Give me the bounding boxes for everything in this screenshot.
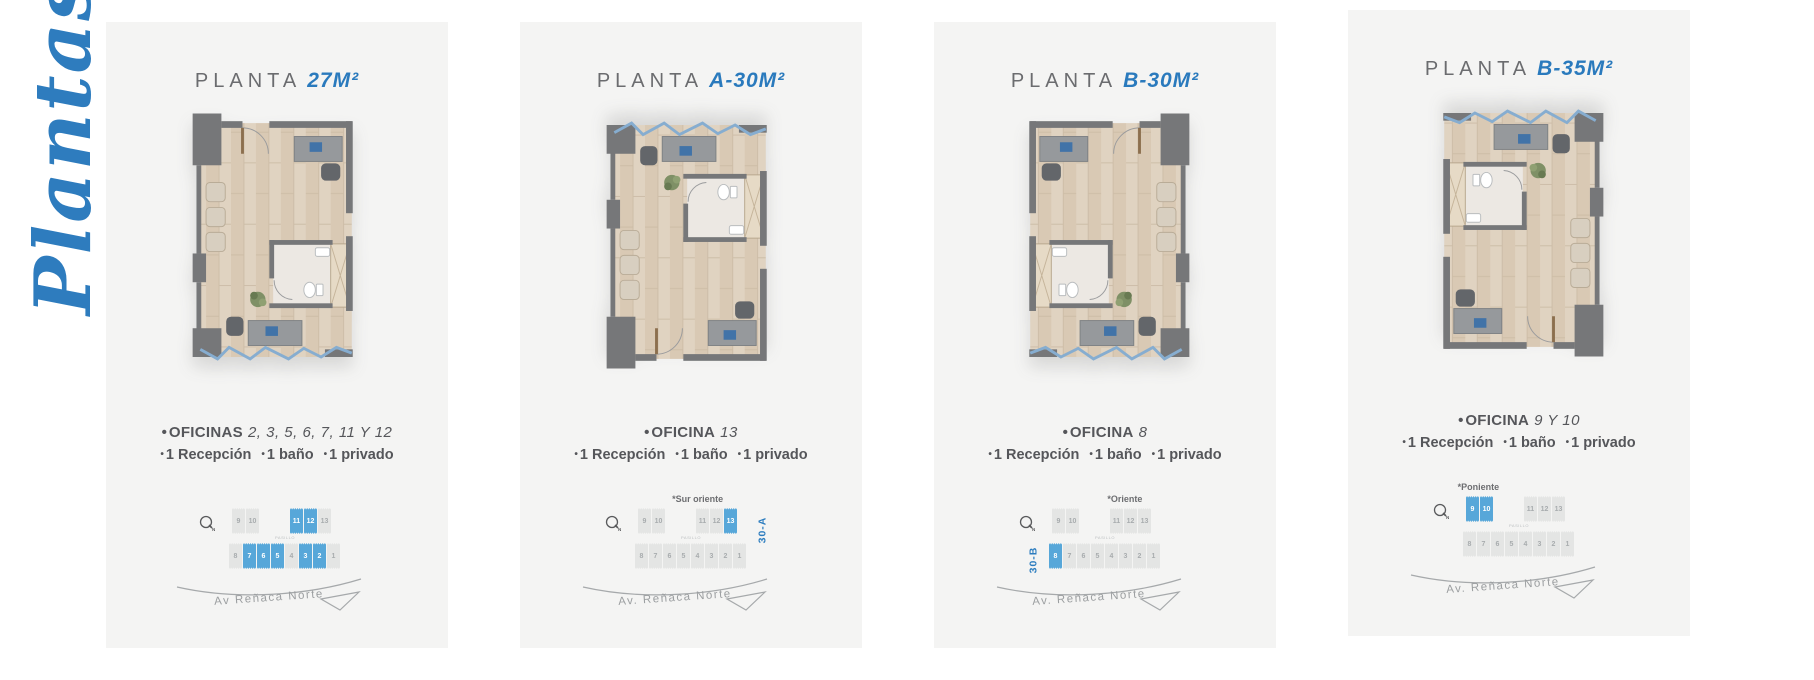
unit-block-8: 8 bbox=[1463, 531, 1476, 557]
offices-numbers: 2, 3, 5, 6, 7, 11 Y 12 bbox=[248, 424, 392, 441]
unit-block-1: 1 bbox=[327, 543, 340, 569]
svg-text:N: N bbox=[618, 527, 621, 532]
feature-text: 1 privado bbox=[1571, 435, 1635, 451]
compass-icon: N bbox=[1018, 514, 1036, 532]
sitemap: *PonienteN910111213PASILLO87654321Av. Re… bbox=[1444, 496, 1594, 611]
plan-title-prefix: PLANTA bbox=[597, 70, 703, 92]
plan-title: PLANTAA-30M² bbox=[520, 66, 862, 94]
bullet: • bbox=[160, 449, 164, 460]
feature-item: •1 privado bbox=[738, 447, 808, 463]
feature-text: 1 privado bbox=[743, 447, 807, 463]
plan-title: PLANTA27M² bbox=[106, 66, 448, 94]
feature-text: 1 baño bbox=[1509, 435, 1556, 451]
bullet: • bbox=[988, 449, 992, 460]
feature-text: 1 baño bbox=[267, 447, 314, 463]
unit-block-1: 1 bbox=[1561, 531, 1574, 557]
unit-tag: 30-A bbox=[757, 517, 769, 544]
plan-card-a-30m2: PLANTAA-30M² •OFICINA13 •1 Recepción•1 b… bbox=[520, 22, 862, 648]
unit-block-8: 8 bbox=[635, 543, 648, 569]
street: Av. Reñaca Norte bbox=[1403, 565, 1603, 611]
plan-title-prefix: PLANTA bbox=[1425, 58, 1531, 80]
unit-block-4: 4 bbox=[1105, 543, 1118, 569]
unit-block-2: 2 bbox=[719, 543, 732, 569]
plan-card-b-35m2: PLANTAB-35M² •OFICINA9 Y 10 •1 Recepción… bbox=[1348, 10, 1690, 636]
feature-text: 1 baño bbox=[1095, 447, 1142, 463]
feature-text: 1 Recepción bbox=[994, 447, 1079, 463]
features-line: •1 Recepción•1 baño•1 privado bbox=[106, 447, 448, 463]
unit-block-6: 6 bbox=[1077, 543, 1090, 569]
bullet: • bbox=[1152, 449, 1156, 460]
unit-block-3: 3 bbox=[1119, 543, 1132, 569]
feature-item: •1 baño bbox=[675, 447, 727, 463]
bullet: • bbox=[1063, 424, 1068, 441]
unit-block-2: 2 bbox=[1547, 531, 1560, 557]
unit-block-8: 8 bbox=[229, 543, 242, 569]
compass-icon: N bbox=[1432, 502, 1450, 520]
feature-item: •1 privado bbox=[1152, 447, 1222, 463]
unit-block-10: 10 bbox=[652, 508, 665, 534]
offices-numbers: 13 bbox=[720, 424, 738, 441]
sitemap: N910111213PASILLO87654321Av Reñaca Norte bbox=[210, 508, 360, 623]
unit-block-3: 3 bbox=[705, 543, 718, 569]
floorplan-image bbox=[1419, 90, 1619, 368]
sitemap: *Sur orienteN910111213PASILLO8765432130-… bbox=[616, 508, 766, 623]
feature-item: •1 Recepción bbox=[574, 447, 665, 463]
feature-text: 1 baño bbox=[681, 447, 728, 463]
unit-block-3: 3 bbox=[299, 543, 312, 569]
bullet: • bbox=[1089, 449, 1093, 460]
unit-block-2: 2 bbox=[1133, 543, 1146, 569]
bullet: • bbox=[1458, 412, 1463, 429]
unit-block-2: 2 bbox=[313, 543, 326, 569]
street: Av Reñaca Norte bbox=[169, 577, 369, 623]
unit-block-1: 1 bbox=[733, 543, 746, 569]
svg-text:N: N bbox=[1032, 527, 1035, 532]
bullet: • bbox=[1566, 437, 1570, 448]
bullet: • bbox=[675, 449, 679, 460]
unit-block-13: 13 bbox=[1552, 496, 1565, 522]
offices-label: OFICINA bbox=[651, 424, 715, 441]
unit-block-8: 8 bbox=[1049, 543, 1062, 569]
unit-block-12: 12 bbox=[1124, 508, 1137, 534]
feature-text: 1 privado bbox=[329, 447, 393, 463]
orientation-label: *Poniente bbox=[1458, 482, 1500, 492]
orientation-label: *Oriente bbox=[1107, 494, 1142, 504]
offices-numbers: 8 bbox=[1139, 424, 1148, 441]
feature-item: •1 privado bbox=[1566, 435, 1636, 451]
offices-line: •OFICINAS2, 3, 5, 6, 7, 11 Y 12 bbox=[106, 424, 448, 441]
offices-label: OFICINA bbox=[1070, 424, 1134, 441]
plan-card-b-30m2: PLANTAB-30M² •OFICINA8 •1 Recepción•1 ba… bbox=[934, 22, 1276, 648]
unit-block-13: 13 bbox=[318, 508, 331, 534]
plan-title: PLANTAB-35M² bbox=[1348, 54, 1690, 82]
unit-block-3: 3 bbox=[1533, 531, 1546, 557]
feature-text: 1 Recepción bbox=[166, 447, 251, 463]
features-line: •1 Recepción•1 baño•1 privado bbox=[520, 447, 862, 463]
pasillo-label: PASILLO bbox=[632, 535, 750, 540]
pasillo-label: PASILLO bbox=[226, 535, 344, 540]
bullet: • bbox=[1503, 437, 1507, 448]
plan-card-27m2: PLANTA27M² •OFICINAS2, 3, 5, 6, 7, 11 Y … bbox=[106, 22, 448, 648]
unit-block-5: 5 bbox=[271, 543, 284, 569]
floorplan-image bbox=[591, 102, 791, 380]
floorplan-image bbox=[1005, 102, 1205, 380]
unit-block-4: 4 bbox=[285, 543, 298, 569]
unit-block-5: 5 bbox=[1505, 531, 1518, 557]
unit-block-4: 4 bbox=[691, 543, 704, 569]
plan-title-size: 27M² bbox=[307, 69, 359, 92]
features-line: •1 Recepción•1 baño•1 privado bbox=[1348, 435, 1690, 451]
svg-text:N: N bbox=[1446, 515, 1449, 520]
unit-block-13: 13 bbox=[724, 508, 737, 534]
feature-text: 1 privado bbox=[1157, 447, 1221, 463]
plantas-script-text: Plantas bbox=[18, 0, 109, 315]
unit-block-11: 11 bbox=[1110, 508, 1123, 534]
unit-block-7: 7 bbox=[1063, 543, 1076, 569]
feature-item: •1 privado bbox=[324, 447, 394, 463]
pasillo-label: PASILLO bbox=[1046, 535, 1164, 540]
compass-icon: N bbox=[604, 514, 622, 532]
offices-line: •OFICINA8 bbox=[934, 424, 1276, 441]
unit-block-11: 11 bbox=[290, 508, 303, 534]
bullet: • bbox=[261, 449, 265, 460]
feature-text: 1 Recepción bbox=[580, 447, 665, 463]
unit-block-13: 13 bbox=[1138, 508, 1151, 534]
plan-title: PLANTAB-30M² bbox=[934, 66, 1276, 94]
bullet: • bbox=[574, 449, 578, 460]
unit-block-7: 7 bbox=[243, 543, 256, 569]
offices-line: •OFICINA13 bbox=[520, 424, 862, 441]
pasillo-label: PASILLO bbox=[1460, 523, 1578, 528]
unit-block-9: 9 bbox=[232, 508, 245, 534]
feature-item: •1 baño bbox=[1089, 447, 1141, 463]
bullet: • bbox=[738, 449, 742, 460]
unit-block-6: 6 bbox=[663, 543, 676, 569]
sitemap: *OrienteN910111213PASILLO8765432130-BAv.… bbox=[1030, 508, 1180, 623]
feature-item: •1 baño bbox=[1503, 435, 1555, 451]
unit-block-10: 10 bbox=[1066, 508, 1079, 534]
street: Av. Reñaca Norte bbox=[575, 577, 775, 623]
feature-item: •1 Recepción bbox=[1402, 435, 1493, 451]
offices-label: OFICINA bbox=[1465, 412, 1529, 429]
unit-block-7: 7 bbox=[649, 543, 662, 569]
plan-title-size: B-35M² bbox=[1537, 57, 1613, 80]
plan-title-prefix: PLANTA bbox=[195, 70, 301, 92]
svg-text:N: N bbox=[212, 527, 215, 532]
unit-block-6: 6 bbox=[1491, 531, 1504, 557]
offices-label: OFICINAS bbox=[169, 424, 243, 441]
street: Av. Reñaca Norte bbox=[989, 577, 1189, 623]
unit-block-9: 9 bbox=[1052, 508, 1065, 534]
orientation-label: *Sur oriente bbox=[672, 494, 723, 504]
bullet: • bbox=[162, 424, 167, 441]
offices-line: •OFICINA9 Y 10 bbox=[1348, 412, 1690, 429]
unit-block-11: 11 bbox=[1524, 496, 1537, 522]
unit-block-11: 11 bbox=[696, 508, 709, 534]
bullet: • bbox=[324, 449, 328, 460]
offices-numbers: 9 Y 10 bbox=[1534, 412, 1580, 429]
plan-title-size: A-30M² bbox=[709, 69, 785, 92]
unit-block-6: 6 bbox=[257, 543, 270, 569]
feature-item: •1 baño bbox=[261, 447, 313, 463]
plan-title-prefix: PLANTA bbox=[1011, 70, 1117, 92]
unit-block-4: 4 bbox=[1519, 531, 1532, 557]
unit-block-12: 12 bbox=[1538, 496, 1551, 522]
unit-block-9: 9 bbox=[1466, 496, 1479, 522]
unit-block-10: 10 bbox=[1480, 496, 1493, 522]
floorplan-image bbox=[177, 102, 377, 380]
unit-block-12: 12 bbox=[304, 508, 317, 534]
unit-block-1: 1 bbox=[1147, 543, 1160, 569]
feature-item: •1 Recepción bbox=[160, 447, 251, 463]
unit-tag: 30-B bbox=[1027, 547, 1039, 574]
bullet: • bbox=[1402, 437, 1406, 448]
feature-item: •1 Recepción bbox=[988, 447, 1079, 463]
unit-block-12: 12 bbox=[710, 508, 723, 534]
plan-title-size: B-30M² bbox=[1123, 69, 1199, 92]
unit-block-10: 10 bbox=[246, 508, 259, 534]
unit-block-5: 5 bbox=[677, 543, 690, 569]
unit-block-9: 9 bbox=[638, 508, 651, 534]
feature-text: 1 Recepción bbox=[1408, 435, 1493, 451]
compass-icon: N bbox=[198, 514, 216, 532]
bullet: • bbox=[644, 424, 649, 441]
unit-block-7: 7 bbox=[1477, 531, 1490, 557]
features-line: •1 Recepción•1 baño•1 privado bbox=[934, 447, 1276, 463]
unit-block-5: 5 bbox=[1091, 543, 1104, 569]
